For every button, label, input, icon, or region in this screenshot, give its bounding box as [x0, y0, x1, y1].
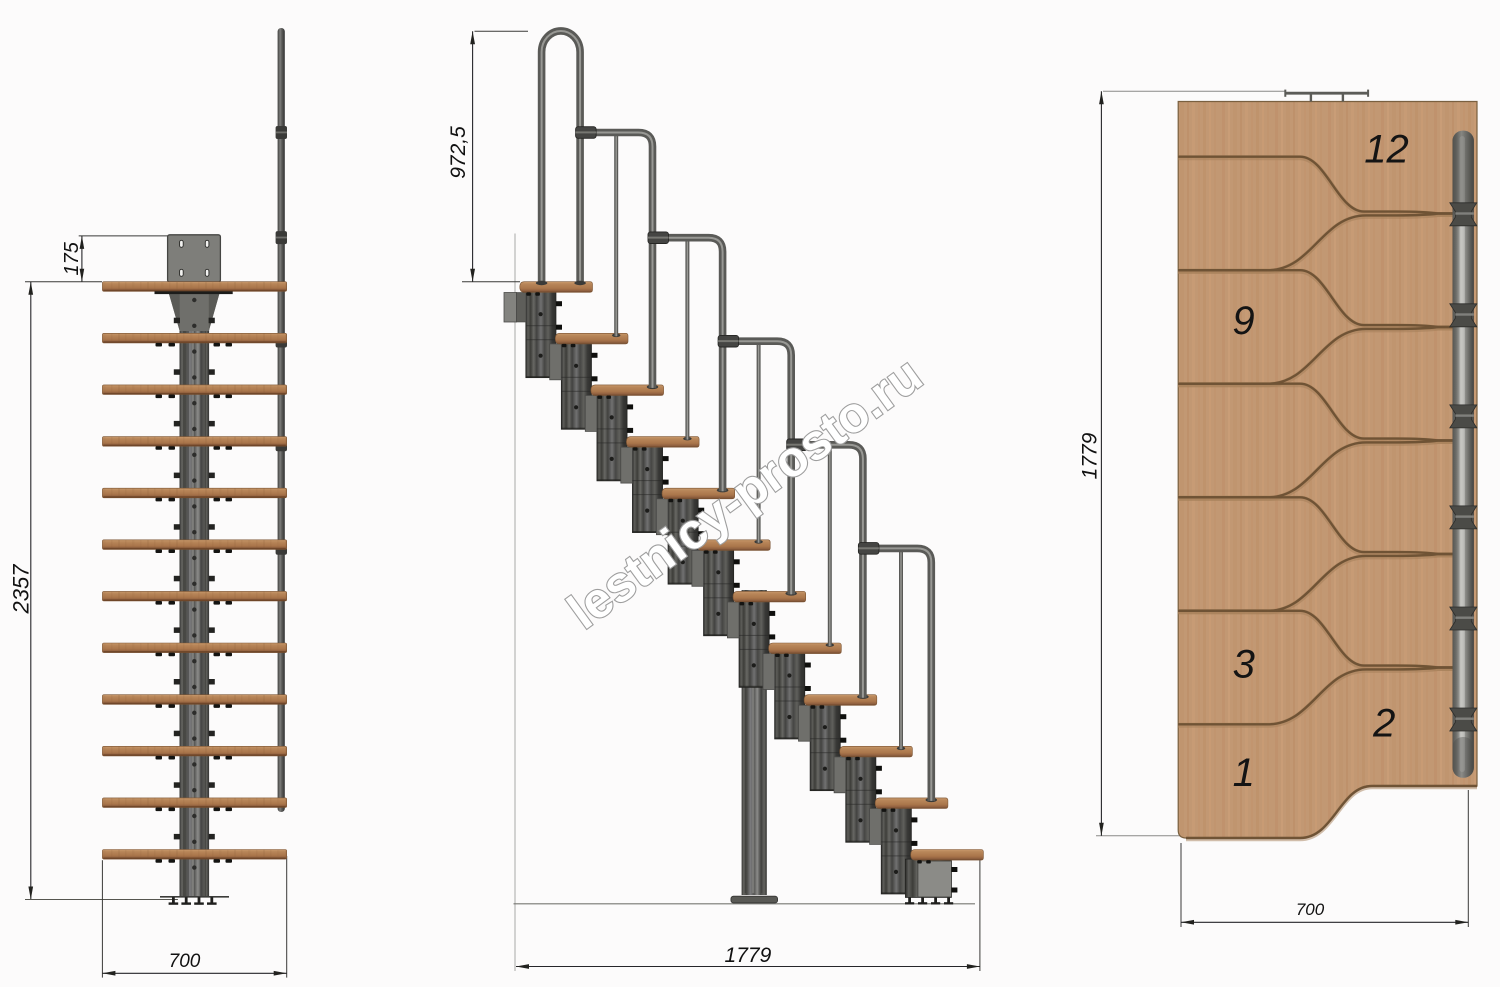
svg-text:972,5: 972,5: [447, 126, 470, 179]
svg-text:700: 700: [1296, 900, 1325, 919]
svg-text:3: 3: [1233, 642, 1255, 686]
svg-text:2357: 2357: [9, 564, 34, 615]
svg-text:175: 175: [61, 241, 83, 275]
svg-text:700: 700: [169, 951, 201, 972]
svg-text:2: 2: [1372, 702, 1395, 746]
svg-text:1779: 1779: [1079, 432, 1102, 479]
svg-text:9: 9: [1232, 299, 1254, 343]
svg-text:12: 12: [1364, 128, 1409, 172]
svg-text:1: 1: [1233, 751, 1255, 795]
svg-text:1779: 1779: [725, 944, 772, 967]
